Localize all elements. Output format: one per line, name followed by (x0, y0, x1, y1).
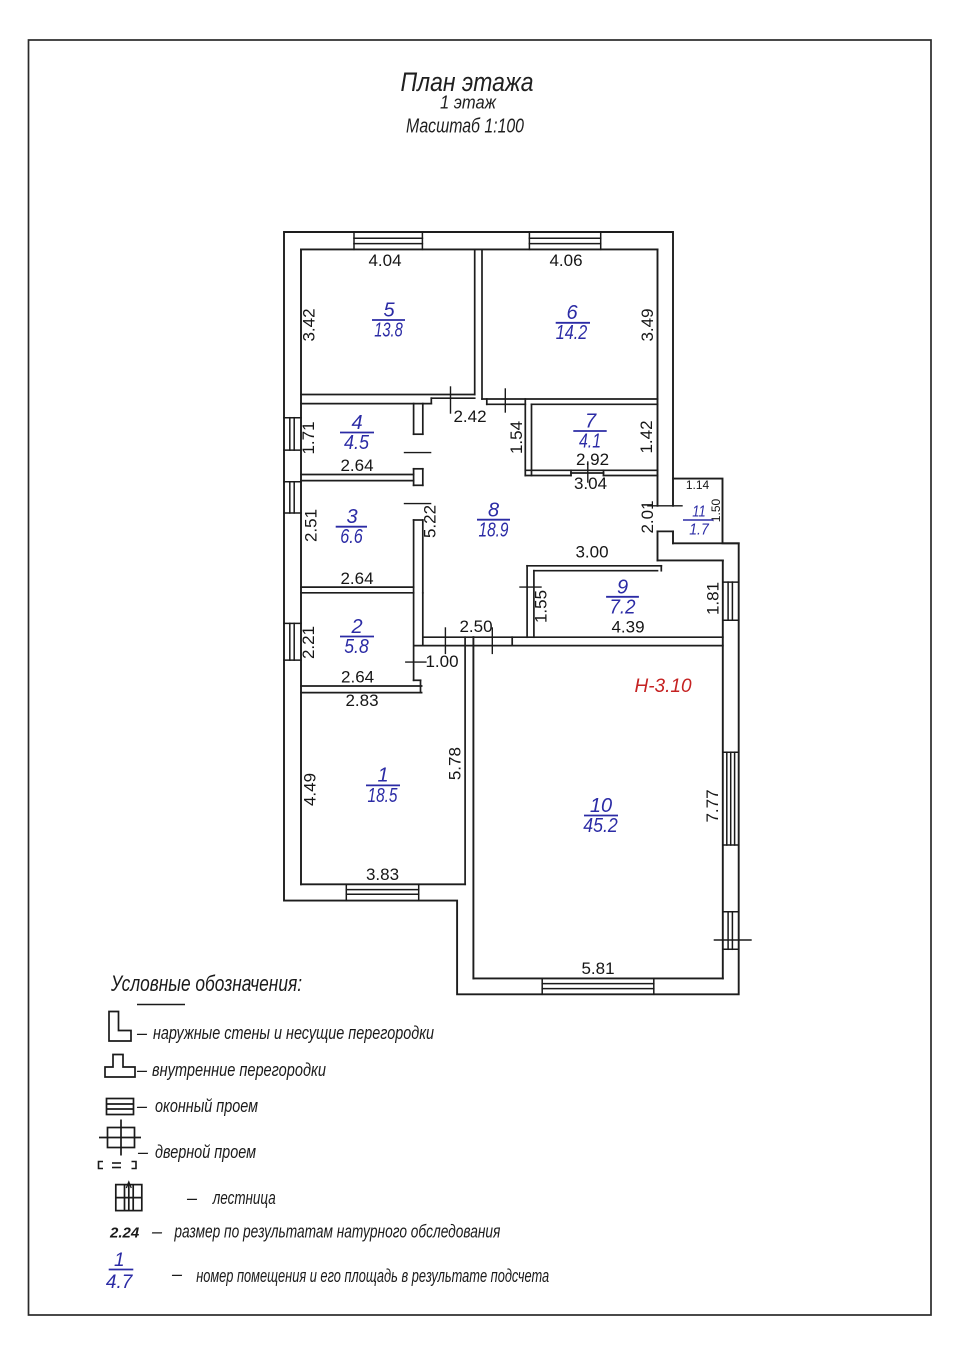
svg-text:2.50: 2.50 (459, 617, 492, 636)
svg-text:3: 3 (346, 506, 357, 528)
svg-text:5: 5 (383, 300, 395, 322)
svg-text:1.50: 1.50 (709, 498, 723, 522)
svg-text:оконный проем: оконный проем (155, 1096, 258, 1116)
svg-text:номер помещения и его площадь: номер помещения и его площадь в результа… (196, 1266, 549, 1286)
svg-text:Условные обозначения:: Условные обозначения: (110, 971, 302, 996)
svg-text:8: 8 (488, 500, 499, 522)
svg-text:2.24: 2.24 (109, 1225, 140, 1242)
svg-text:14.2: 14.2 (556, 322, 588, 344)
svg-text:4.1: 4.1 (579, 431, 601, 453)
svg-text:6.6: 6.6 (340, 526, 363, 548)
svg-text:1.55: 1.55 (531, 590, 550, 623)
svg-text:–: – (186, 1188, 198, 1208)
svg-text:18.9: 18.9 (479, 520, 509, 542)
svg-text:3.49: 3.49 (638, 308, 657, 341)
svg-text:4.39: 4.39 (611, 618, 644, 637)
svg-text:2: 2 (350, 616, 362, 638)
svg-text:1.71: 1.71 (299, 421, 318, 454)
svg-text:1 этаж: 1 этаж (440, 93, 497, 113)
svg-text:размер по результатам натурног: размер по результатам натурного обследов… (174, 1222, 501, 1242)
svg-text:4.5: 4.5 (344, 432, 370, 454)
svg-text:10: 10 (590, 795, 612, 817)
svg-text:7.2: 7.2 (610, 597, 636, 619)
svg-text:1.81: 1.81 (703, 582, 722, 615)
svg-text:5.22: 5.22 (420, 505, 439, 538)
svg-text:18.5: 18.5 (368, 785, 399, 807)
svg-text:2.21: 2.21 (299, 626, 318, 659)
svg-text:5.81: 5.81 (581, 959, 614, 978)
svg-text:1.14: 1.14 (686, 478, 710, 492)
svg-text:дверной проем: дверной проем (155, 1142, 256, 1162)
svg-text:4.04: 4.04 (368, 251, 401, 270)
svg-text:5.78: 5.78 (445, 747, 464, 780)
svg-text:внутренние перегородки: внутренние перегородки (152, 1060, 326, 1080)
svg-text:3.42: 3.42 (299, 308, 318, 341)
svg-text:–: – (151, 1222, 163, 1242)
svg-text:3.00: 3.00 (575, 543, 608, 562)
svg-text:3.83: 3.83 (366, 865, 399, 884)
svg-text:2.64: 2.64 (340, 456, 373, 475)
svg-text:9: 9 (617, 577, 628, 599)
svg-text:Н-3.10: Н-3.10 (634, 676, 691, 697)
svg-text:1.7: 1.7 (689, 522, 709, 539)
svg-text:–: – (171, 1264, 183, 1284)
svg-text:1.54: 1.54 (507, 421, 526, 454)
svg-text:13.8: 13.8 (374, 320, 403, 342)
svg-text:–: – (136, 1023, 148, 1043)
svg-text:4.06: 4.06 (549, 251, 582, 270)
svg-text:Масштаб 1:100: Масштаб 1:100 (406, 116, 524, 138)
svg-text:2.83: 2.83 (345, 691, 378, 710)
svg-text:2.92: 2.92 (576, 450, 609, 469)
svg-text:7: 7 (585, 411, 597, 433)
svg-text:2.51: 2.51 (301, 509, 320, 542)
svg-text:–: – (137, 1142, 149, 1162)
svg-text:2.64: 2.64 (340, 569, 373, 588)
svg-text:11: 11 (692, 504, 706, 521)
svg-text:–: – (136, 1096, 148, 1116)
svg-text:лестница: лестница (212, 1188, 276, 1208)
svg-text:4: 4 (351, 412, 362, 434)
svg-text:1: 1 (377, 765, 388, 787)
svg-text:2.64: 2.64 (341, 668, 374, 687)
svg-text:–: – (136, 1060, 148, 1080)
svg-text:2.42: 2.42 (453, 407, 486, 426)
svg-text:7.77: 7.77 (703, 789, 722, 822)
svg-text:1.00: 1.00 (425, 652, 458, 671)
svg-text:5.8: 5.8 (344, 636, 369, 658)
svg-text:4.49: 4.49 (300, 773, 319, 806)
svg-text:4.7: 4.7 (106, 1272, 134, 1293)
svg-text:45.2: 45.2 (583, 815, 618, 837)
svg-text:наружные стены и несущие перег: наружные стены и несущие перегородки (153, 1023, 434, 1043)
svg-text:3.04: 3.04 (574, 474, 607, 493)
svg-text:2.01: 2.01 (638, 500, 657, 533)
svg-text:1.42: 1.42 (637, 420, 656, 453)
svg-text:1: 1 (114, 1250, 125, 1271)
svg-text:6: 6 (566, 302, 578, 324)
